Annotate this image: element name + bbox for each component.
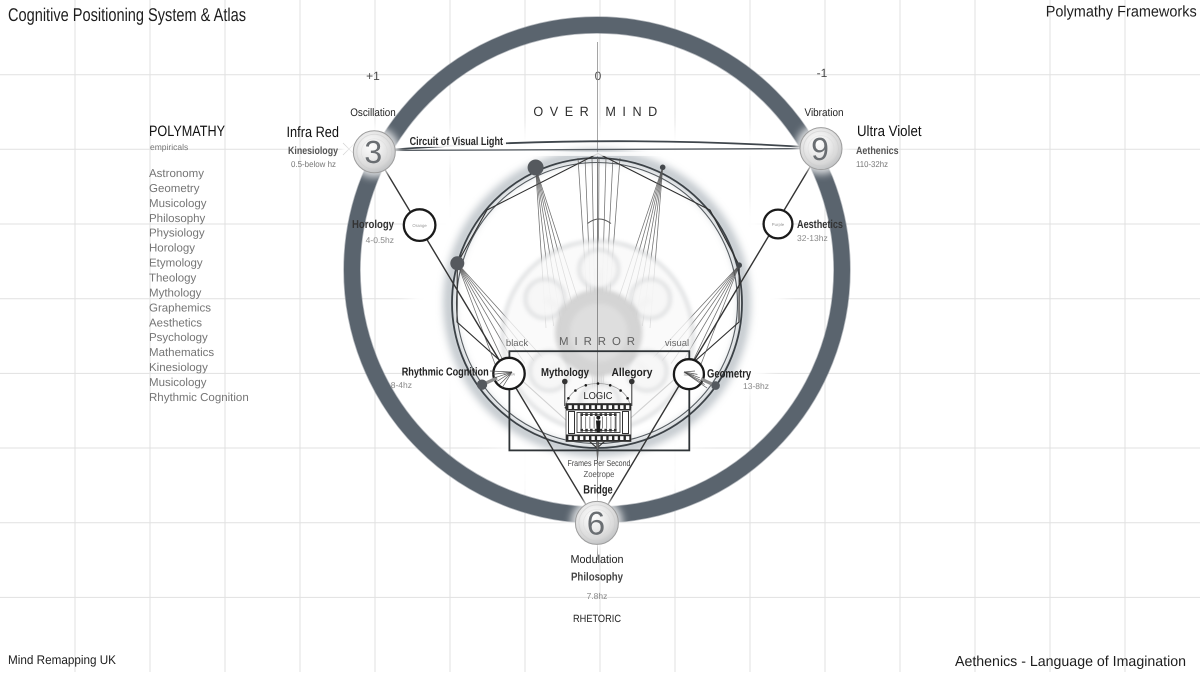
svg-text:Infra Red: Infra Red	[287, 124, 340, 141]
svg-text:Polymathy Frameworks: Polymathy Frameworks	[1046, 4, 1197, 21]
svg-text:POLYMATHY: POLYMATHY	[149, 123, 225, 140]
svg-text:Horology: Horology	[149, 243, 195, 255]
svg-text:-1: -1	[817, 66, 828, 80]
svg-text:7.8hz: 7.8hz	[587, 591, 608, 601]
svg-text:Rhythmic Cognition: Rhythmic Cognition	[402, 367, 489, 379]
svg-text:0.5-below hz: 0.5-below hz	[291, 159, 336, 169]
svg-text:Ultra Violet: Ultra Violet	[857, 123, 922, 140]
svg-text:9: 9	[811, 131, 829, 167]
svg-text:32-13hz: 32-13hz	[797, 233, 828, 243]
svg-text:Aethenics - Language of Imagin: Aethenics - Language of Imagination	[955, 654, 1186, 670]
svg-text:RHETORIC: RHETORIC	[573, 613, 621, 625]
svg-text:visual: visual	[665, 338, 689, 349]
svg-text:Rhythmic Cognition: Rhythmic Cognition	[149, 392, 249, 404]
svg-text:Aesthetics: Aesthetics	[797, 219, 843, 231]
svg-text:Cognitive Positioning System &: Cognitive Positioning System & Atlas	[8, 4, 246, 25]
svg-text:Philosophy: Philosophy	[571, 572, 623, 584]
svg-text:Theology: Theology	[149, 273, 197, 285]
svg-text:Frames Per Second: Frames Per Second	[568, 458, 631, 468]
svg-text:Mathematics: Mathematics	[149, 347, 214, 359]
svg-text:Allegory: Allegory	[612, 367, 654, 379]
svg-text:MIRROR: MIRROR	[559, 336, 641, 348]
svg-text:black: black	[506, 338, 528, 349]
svg-text:Horology: Horology	[352, 219, 394, 231]
svg-text:Circuit of Visual Light: Circuit of Visual Light	[410, 136, 504, 148]
svg-text:0: 0	[595, 69, 602, 83]
svg-text:LOGIC: LOGIC	[584, 391, 613, 402]
svg-text:Mythology: Mythology	[149, 287, 202, 299]
svg-text:4-0.5hz: 4-0.5hz	[366, 235, 394, 245]
svg-text:Bridge: Bridge	[583, 483, 613, 497]
svg-text:Aesthetics: Aesthetics	[149, 317, 202, 329]
svg-text:Geometry: Geometry	[707, 367, 751, 381]
svg-text:13-8hz: 13-8hz	[743, 381, 769, 391]
svg-text:Vibration: Vibration	[805, 107, 844, 119]
svg-text:Zoetrope: Zoetrope	[584, 469, 615, 479]
svg-text:Kinesiology: Kinesiology	[149, 362, 208, 374]
svg-text:Mythology: Mythology	[541, 367, 589, 379]
svg-text:Philosophy: Philosophy	[149, 213, 206, 225]
svg-text:110-32hz: 110-32hz	[856, 159, 888, 169]
svg-text:OVER MIND: OVER MIND	[533, 104, 663, 119]
svg-text:Purple: Purple	[772, 222, 785, 227]
svg-text:+1: +1	[366, 69, 380, 83]
svg-text:8-4hz: 8-4hz	[391, 380, 412, 390]
svg-text:3: 3	[364, 134, 382, 170]
svg-text:Kinesiology: Kinesiology	[288, 145, 338, 157]
svg-text:Psychology: Psychology	[149, 332, 208, 344]
svg-text:Physiology: Physiology	[149, 228, 205, 240]
svg-text:Musicology: Musicology	[149, 198, 207, 210]
svg-text:Oscillation: Oscillation	[350, 107, 396, 119]
svg-text:Musicology: Musicology	[149, 377, 207, 389]
svg-text:Astronomy: Astronomy	[149, 168, 204, 180]
svg-text:Modulation: Modulation	[571, 554, 624, 566]
svg-text:Aethenics: Aethenics	[856, 145, 899, 157]
svg-text:Geometry: Geometry	[149, 183, 200, 195]
svg-text:6: 6	[587, 505, 605, 542]
svg-text:Mind Remapping UK: Mind Remapping UK	[8, 653, 117, 667]
svg-text:Etymology: Etymology	[149, 258, 203, 270]
svg-text:empiricals: empiricals	[150, 142, 188, 152]
svg-text:Graphemics: Graphemics	[149, 302, 211, 314]
svg-text:Orange: Orange	[412, 223, 427, 228]
